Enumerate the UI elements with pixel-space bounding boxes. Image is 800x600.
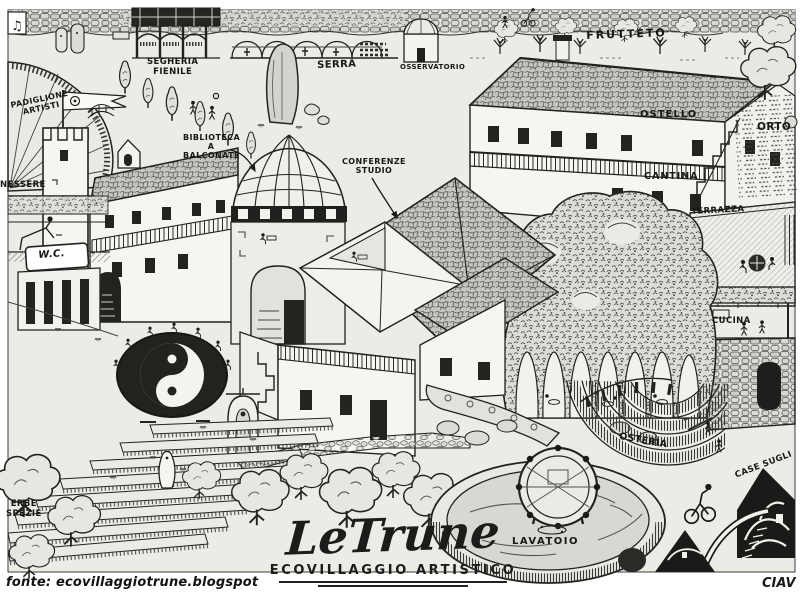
- label-erbe-spezie: ERBE SPEZIE: [6, 500, 42, 519]
- label-biblioteca: BIBLIOTECA A BALCONATE: [183, 134, 239, 161]
- label-benessere: NESSERE: [0, 181, 46, 191]
- hooded-figure: [159, 452, 175, 489]
- label-orto: ORTO: [757, 122, 791, 134]
- label-cucina: CUCINA: [712, 317, 751, 327]
- ecovillage-map: ♫: [0, 0, 800, 600]
- label-wc: W.C.: [38, 248, 65, 261]
- artist-signature: CIAV: [762, 577, 796, 590]
- music-note-icon: ♫: [11, 19, 23, 34]
- yin-yang-symbol: [140, 343, 204, 407]
- source-credit: fonte: ecovillaggiotrune.blogspot: [6, 576, 258, 589]
- orto-garden: [734, 95, 797, 198]
- label-lavatoio: LAVATOIO: [512, 536, 579, 547]
- label-osservatorio: OSSERVATORIO: [400, 64, 465, 72]
- label-conferenze-studio: CONFERENZE STUDIO: [342, 158, 406, 176]
- label-segheria-fienile: SEGHERIA FIENILE: [147, 58, 198, 77]
- osservatorio-observatory: [404, 19, 438, 62]
- title-underline-2: [318, 585, 468, 587]
- map-subtitle: ECOVILLAGGIO ARTISTICO: [268, 564, 518, 577]
- title-block: LeTrune ECOVILLAGGIO ARTISTICO: [268, 512, 518, 587]
- map-title: LeTrune: [266, 508, 520, 563]
- title-underline: [279, 581, 507, 583]
- label-ostello: OSTELLO: [640, 109, 697, 120]
- label-cantina: CANTINA: [644, 172, 699, 183]
- edge-fence: [783, 215, 795, 265]
- label-serra: SERRA: [317, 59, 357, 72]
